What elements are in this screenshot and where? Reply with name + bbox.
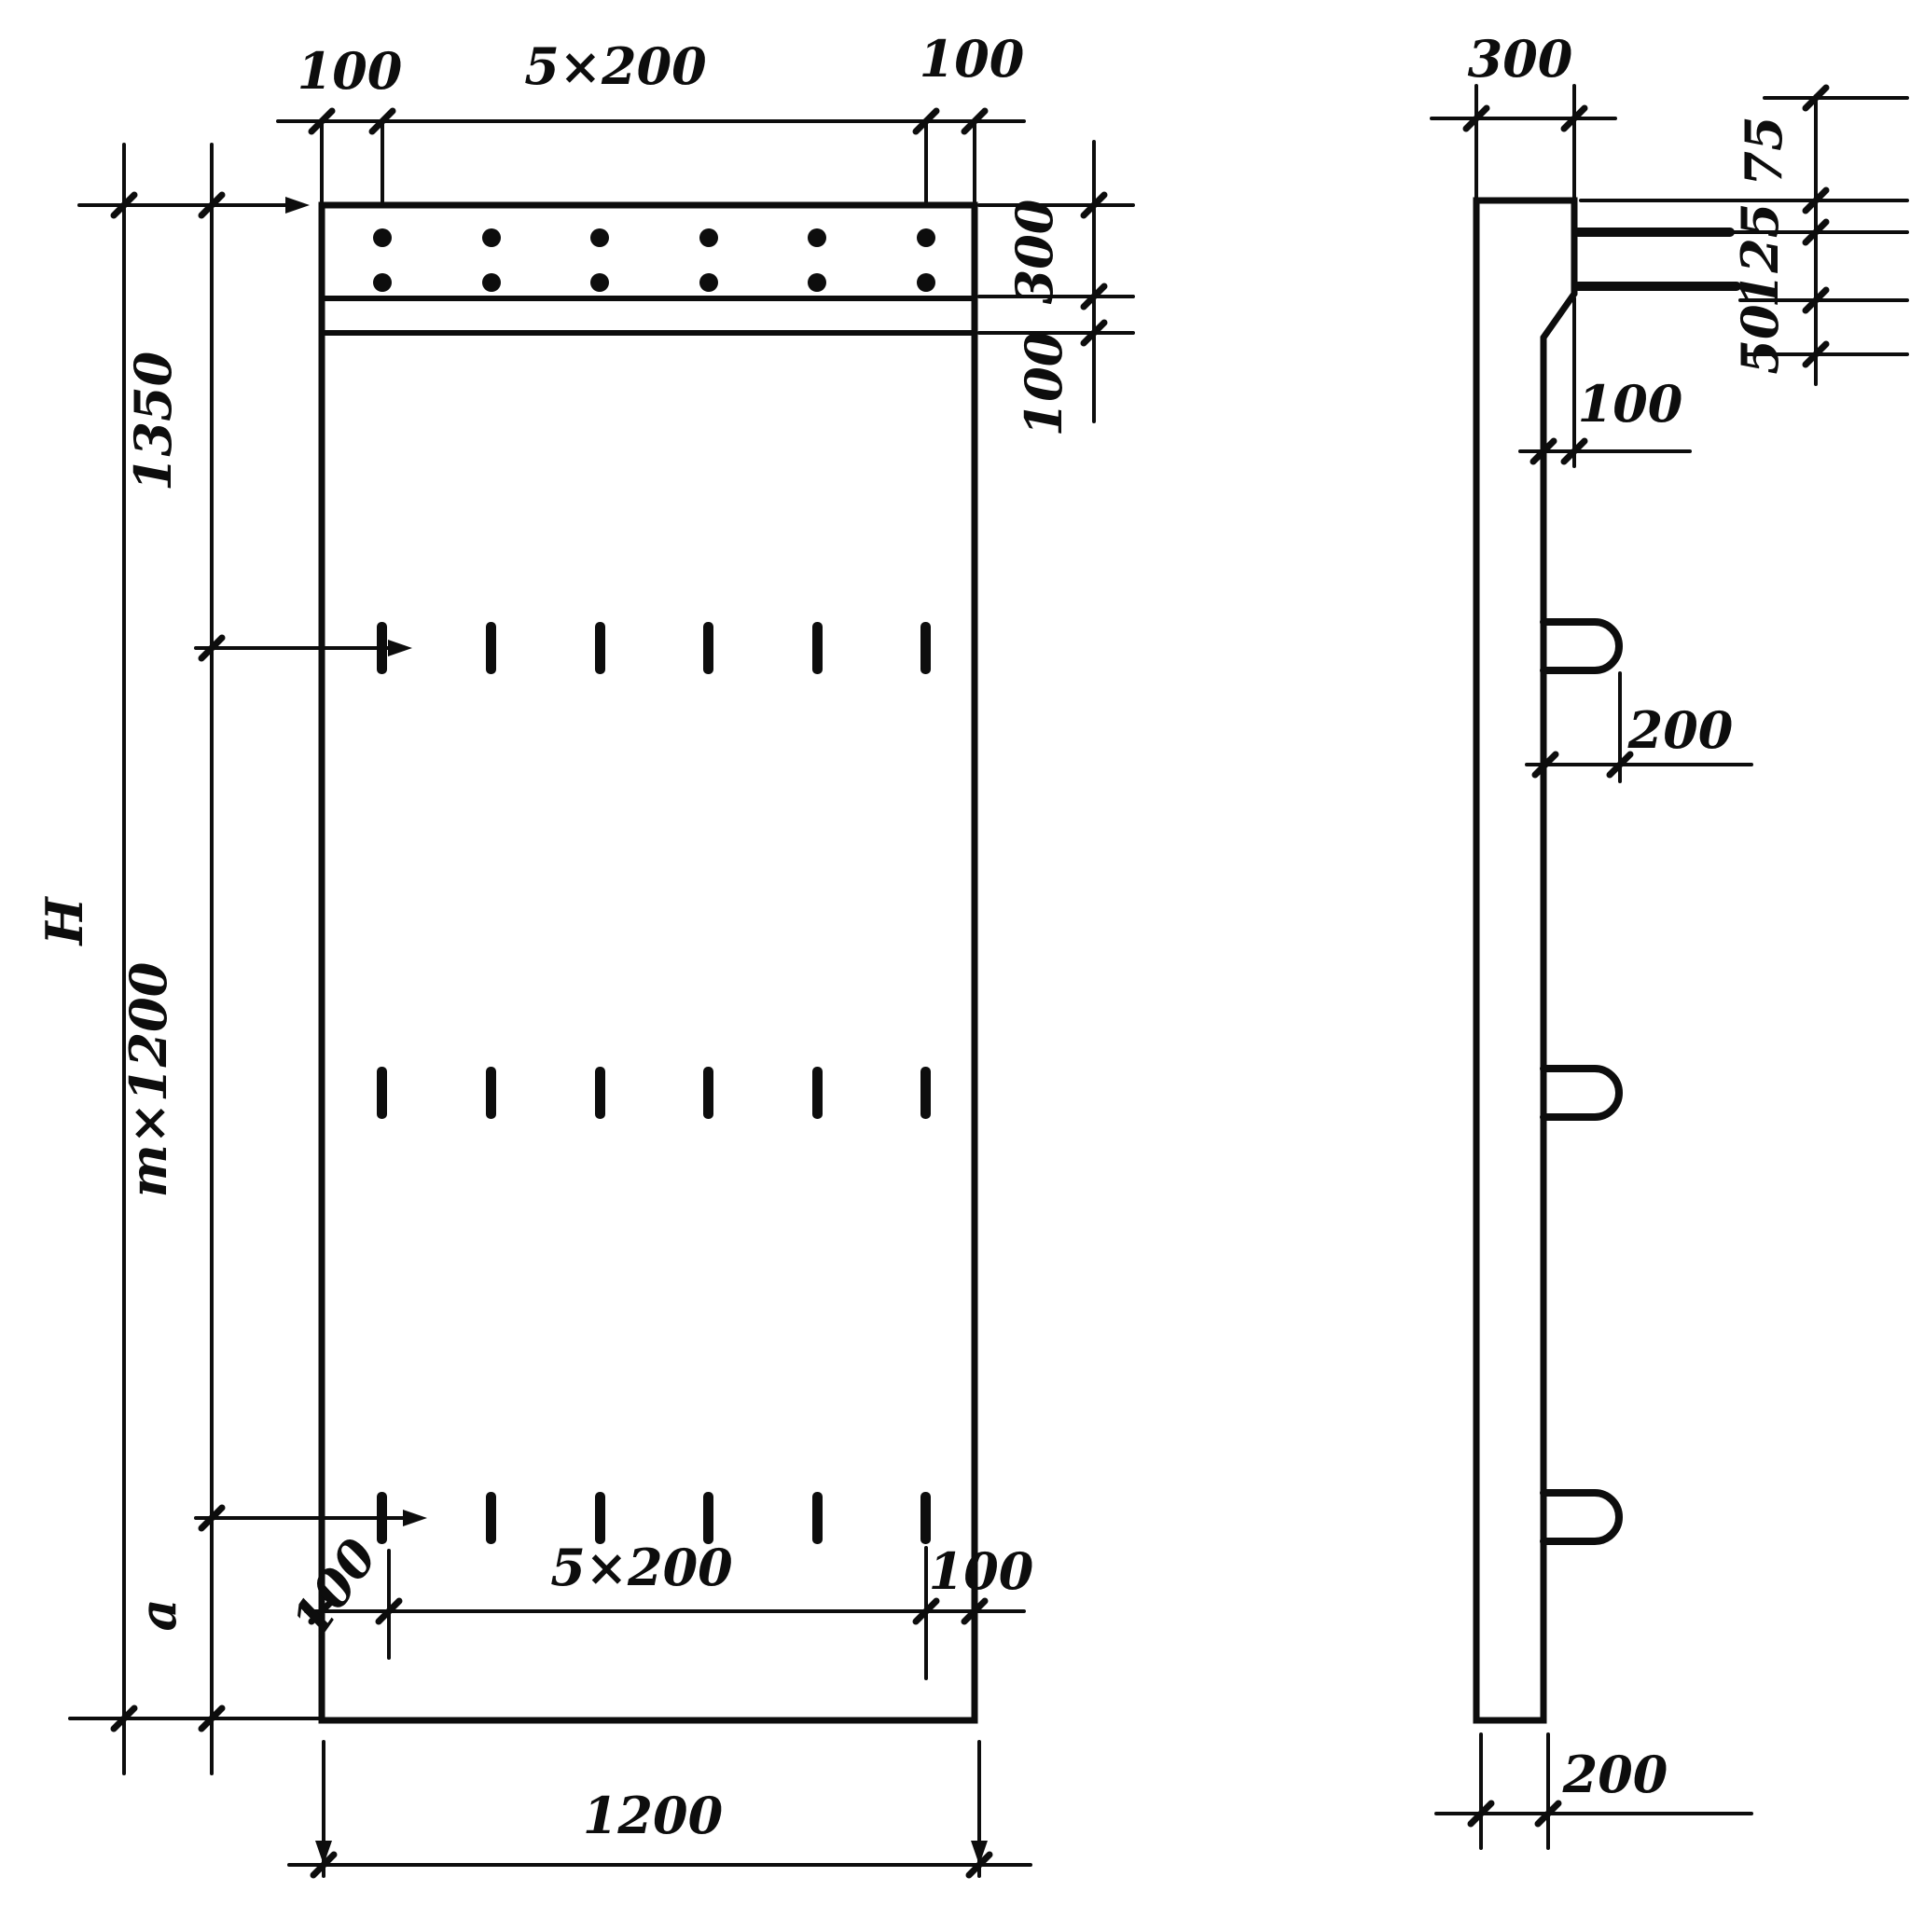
dim-top-left-100: 100 — [298, 41, 403, 101]
dim-side-50: 50 — [1730, 304, 1790, 374]
front-view-dowel-dots — [373, 228, 935, 292]
drawing-sheet: 100 5×200 100 300 100 H 1350 m×1200 a 10… — [0, 0, 1910, 1932]
technical-drawing: 100 5×200 100 300 100 H 1350 m×1200 a 10… — [0, 0, 1910, 1932]
dim-1350: 1350 — [123, 352, 183, 491]
side-view-dowel-bars — [1578, 232, 1737, 286]
front-view-panel — [322, 205, 975, 1720]
dim-side-75: 75 — [1734, 116, 1793, 186]
dim-a: a — [128, 1599, 187, 1632]
side-view-loop-hooks — [1543, 622, 1619, 1541]
dim-side-bottom-200: 200 — [1562, 1745, 1668, 1804]
side-view-dimension-labels: 300 75 125 50 100 200 200 — [1468, 29, 1793, 1804]
dim-hook-200: 200 — [1627, 700, 1734, 760]
dim-overall-height-H: H — [35, 896, 94, 947]
dim-band-300: 300 — [1004, 200, 1064, 305]
dim-lower-5x200: 5×200 — [550, 1538, 733, 1597]
dim-mx1200: m×1200 — [118, 962, 178, 1198]
front-view-anchor-slots — [377, 622, 931, 1544]
dim-top-right-100: 100 — [920, 29, 1025, 89]
dim-top-5x200: 5×200 — [524, 36, 707, 96]
dim-lower-right-100: 100 — [929, 1541, 1034, 1601]
dim-side-top-300: 300 — [1468, 29, 1573, 89]
dim-width-1200: 1200 — [583, 1786, 723, 1845]
dim-side-125: 125 — [1730, 203, 1790, 309]
dim-side-step-100: 100 — [1578, 374, 1683, 434]
front-view-dimension-labels: 100 5×200 100 300 100 H 1350 m×1200 a 10… — [35, 29, 1073, 1845]
side-view-dimension-linework — [1432, 86, 1907, 1848]
dim-step-100: 100 — [1014, 332, 1073, 437]
dim-lower-left-100: 100 — [280, 1528, 389, 1649]
